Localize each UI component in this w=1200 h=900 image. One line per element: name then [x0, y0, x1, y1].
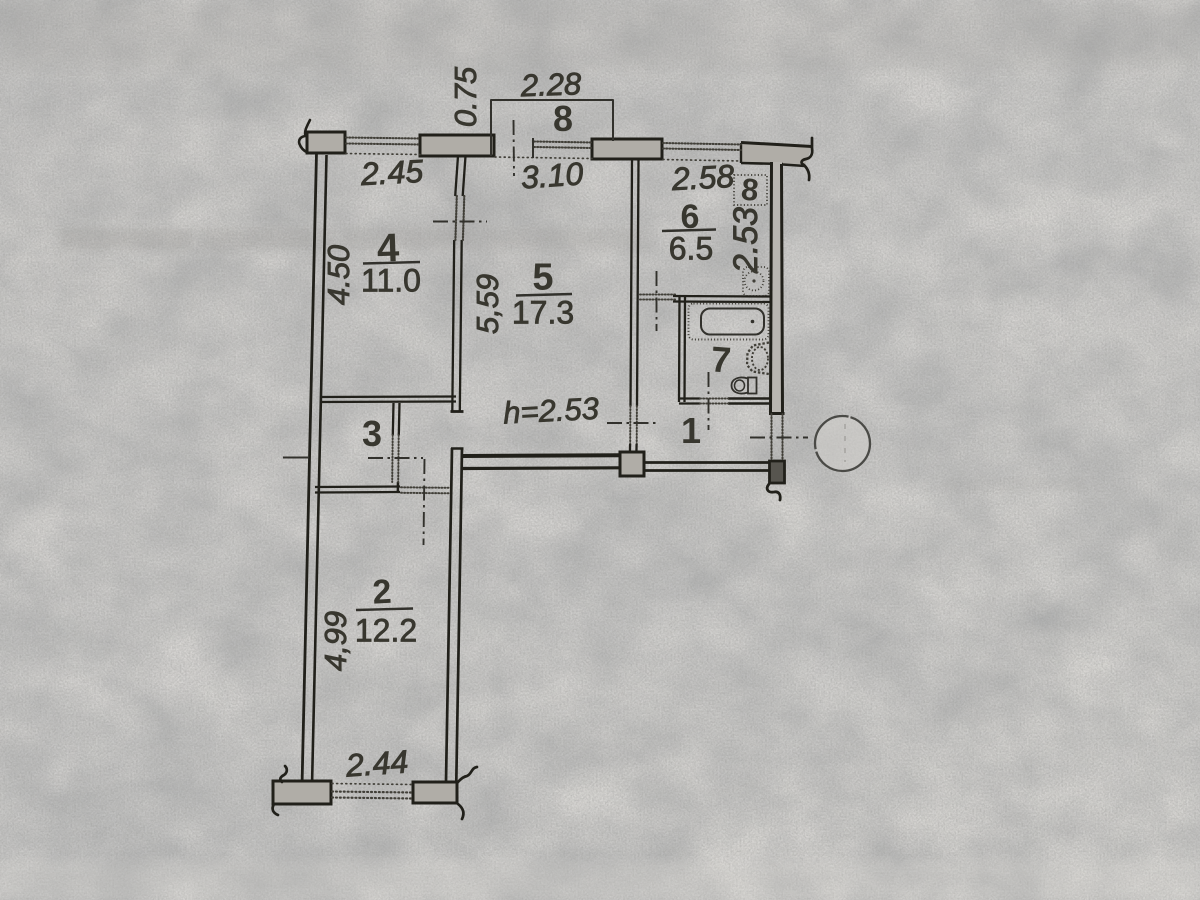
svg-text:5: 5	[532, 257, 553, 299]
svg-text:11.0: 11.0	[361, 263, 421, 299]
svg-text:2.45: 2.45	[359, 153, 424, 192]
svg-text:2.44: 2.44	[344, 743, 410, 783]
svg-text:3.10: 3.10	[520, 155, 585, 195]
svg-text:2.53: 2.53	[727, 207, 765, 274]
svg-text:7: 7	[710, 338, 733, 380]
svg-text:3: 3	[362, 413, 382, 454]
svg-text:17.3: 17.3	[512, 295, 574, 331]
svg-text:2.58: 2.58	[670, 158, 735, 197]
svg-text:0.75: 0.75	[448, 66, 483, 127]
svg-text:2.28: 2.28	[519, 66, 582, 103]
svg-text:2: 2	[372, 573, 393, 612]
svg-text:1: 1	[681, 410, 701, 451]
svg-text:8: 8	[740, 171, 761, 208]
svg-text:6.5: 6.5	[669, 231, 713, 267]
svg-text:5,59: 5,59	[470, 274, 505, 334]
svg-text:4,99: 4,99	[318, 611, 353, 671]
svg-text:8: 8	[553, 98, 573, 139]
svg-text:4.50: 4.50	[321, 245, 356, 305]
svg-text:12.2: 12.2	[355, 613, 417, 649]
svg-text:h=2.53: h=2.53	[502, 391, 599, 431]
